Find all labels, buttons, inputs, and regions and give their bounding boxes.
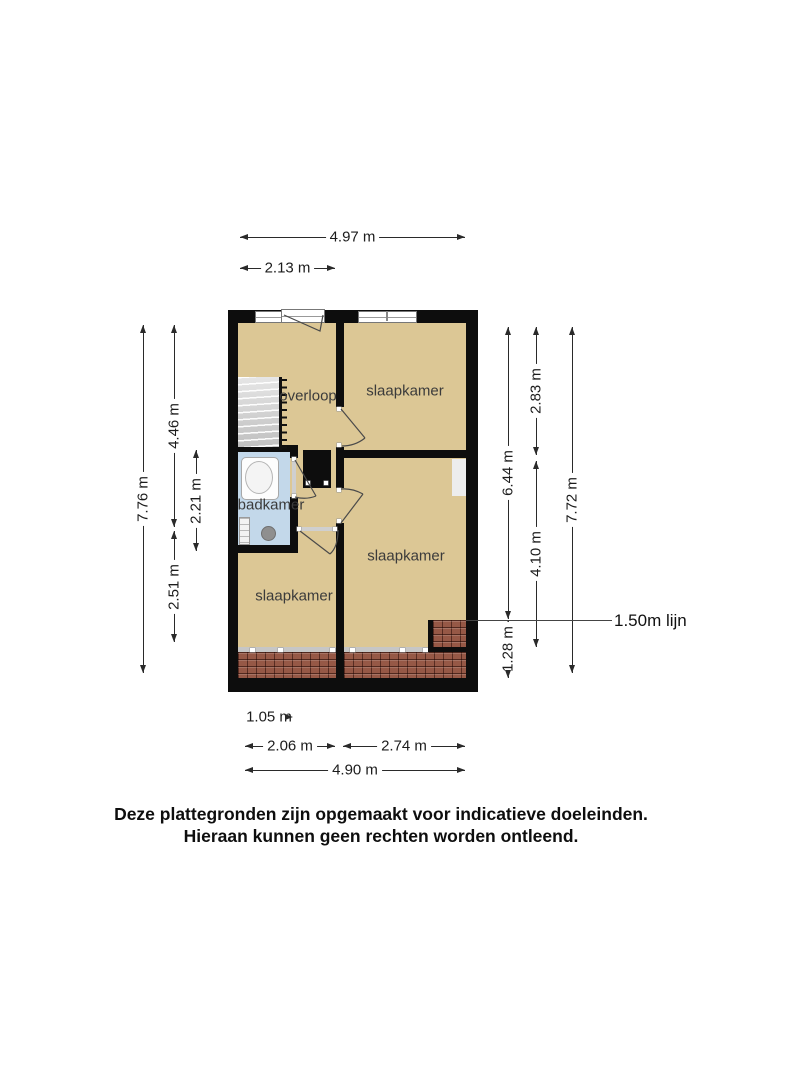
room-label-bedroom-bottom: slaapkamer — [255, 588, 333, 605]
dim-top-full: 4.97 m — [240, 229, 465, 245]
dim-label: 4.46 m — [166, 399, 183, 453]
dim-right-to-line: 6.44 m — [500, 327, 516, 619]
dim-label: 1.28 m — [500, 622, 517, 676]
room-label-bedroom-top: slaapkamer — [366, 383, 444, 400]
dim-label: 1.05 m — [242, 709, 296, 726]
dim-label: 4.97 m — [326, 229, 380, 246]
dim-label: 7.72 m — [564, 473, 581, 527]
door-leaf-bedroom-top — [341, 409, 365, 438]
dim-left-bottom: 2.51 m — [166, 531, 182, 642]
door-arc-bedroom-top — [342, 438, 365, 446]
dim-label: 2.83 m — [528, 364, 545, 418]
dim-bottom-stairs: 1.05 m — [245, 709, 293, 725]
dim-label: 4.10 m — [528, 527, 545, 581]
dim-label: 2.13 m — [261, 260, 315, 277]
door-leaf-bedroom-mid — [341, 494, 363, 523]
dim-label: 6.44 m — [500, 446, 517, 500]
dim-bottom-full: 4.90 m — [245, 762, 465, 778]
dim-right-full: 7.72 m — [564, 327, 580, 673]
door-arc-bedroom-mid — [341, 489, 363, 494]
dim-left-top: 4.46 m — [166, 325, 182, 527]
dim-label: 4.90 m — [328, 762, 382, 779]
dim-label: 2.06 m — [263, 738, 317, 755]
room-label-bathroom: badkamer — [238, 497, 305, 514]
dim-left-full: 7.76 m — [135, 325, 151, 673]
door-arc-bedroom-bottom — [330, 530, 338, 554]
dim-bottom-right: 2.74 m — [343, 738, 465, 754]
knee-height-leader-line — [466, 620, 612, 621]
dim-left-bath: 2.21 m — [188, 450, 204, 551]
dim-top-left: 2.13 m — [240, 260, 335, 276]
dim-bottom-left: 2.06 m — [245, 738, 335, 754]
dim-label: 2.74 m — [377, 738, 431, 755]
disclaimer: Deze plattegronden zijn opgemaakt voor i… — [0, 804, 762, 848]
disclaimer-line1: Deze plattegronden zijn opgemaakt voor i… — [0, 804, 762, 826]
dim-label: 2.51 m — [166, 560, 183, 614]
dim-right-below-line: 1.28 m — [500, 620, 516, 678]
door-leaf-bedroom-bottom — [300, 531, 330, 554]
dim-right-top: 2.83 m — [528, 327, 544, 455]
dim-label: 7.76 m — [135, 472, 152, 526]
disclaimer-line2: Hieraan kunnen geen rechten worden ontle… — [0, 826, 762, 848]
floorplan-page: overloop slaapkamer badkamer slaapkamer … — [0, 0, 810, 1080]
door-leaf-bathroom — [295, 460, 316, 496]
window-tilt-line — [284, 315, 323, 331]
dim-label: 2.21 m — [188, 474, 205, 528]
knee-height-label: 1.50m lijn — [614, 611, 687, 631]
room-label-bedroom-mid: slaapkamer — [367, 548, 445, 565]
room-label-overloop: overloop — [279, 388, 337, 405]
